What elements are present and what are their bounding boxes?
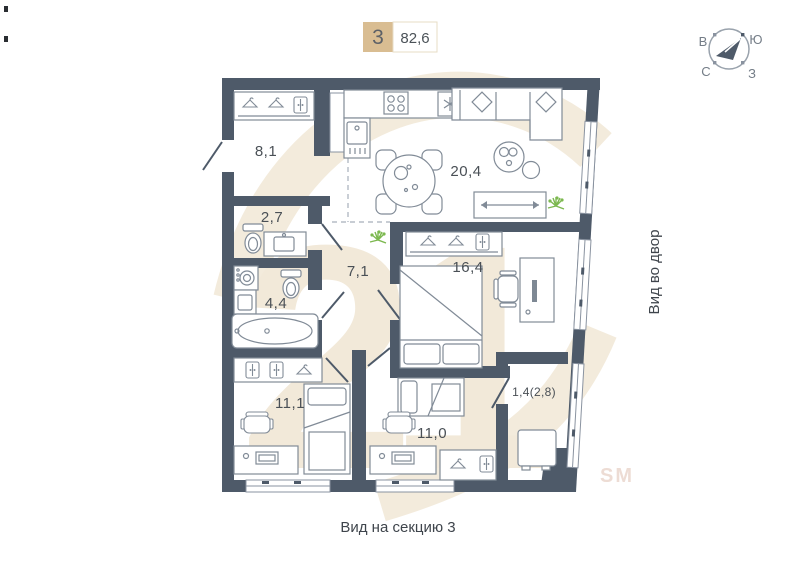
floor-plan-canvas: 21 SM 3 82,6 В Ю С З [0, 0, 800, 566]
wc-vanity-sink [264, 232, 306, 256]
sofa-icon [452, 88, 562, 140]
compass-tick-ne [741, 33, 744, 36]
window-bedroom-second [246, 480, 330, 492]
wall-bath-right-a [308, 268, 322, 290]
desk-chair [498, 276, 518, 302]
compass-tick-se [741, 61, 744, 64]
coffee-table-icon [494, 142, 540, 179]
window-bedroom-third [376, 480, 454, 492]
room-label-corridor: 7,1 [347, 263, 369, 280]
wall-balcony-left-b [496, 404, 508, 480]
double-bed-icon [400, 266, 482, 368]
apartment-badge: 3 82,6 [363, 22, 437, 52]
watermark-small-text: SM [600, 465, 634, 487]
edge-mark-bottom [4, 36, 8, 42]
pillow [443, 344, 479, 364]
duct-shaft [330, 93, 344, 152]
single-bed-icon-third [398, 378, 464, 416]
bedroom-second-wardrobe [234, 358, 322, 382]
wall-bedrooms-divider [352, 350, 366, 480]
floor-plan-page: 21 SM 3 82,6 В Ю С З [0, 0, 800, 566]
dining-table-icon [376, 150, 442, 214]
tv-console-icon [474, 192, 546, 218]
room-label-bedroom-second: 11,1 [275, 395, 305, 412]
compass-tick-nw [713, 33, 716, 36]
caption-section-view: Вид на секцию 3 [340, 519, 455, 536]
room-label-wc: 2,7 [261, 209, 283, 226]
total-area-label: 82,6 [400, 30, 429, 47]
wall-balcony-left-a [496, 352, 508, 376]
room-label-balcony: 1,4(2,8) [512, 385, 556, 399]
pillow [404, 344, 440, 364]
wall-wc-right-b [308, 250, 322, 268]
cabinet-icon [480, 456, 493, 472]
wall-hall-bottom [222, 196, 330, 206]
window-bedroom-main [574, 239, 591, 330]
compass-south: Ю [749, 32, 762, 47]
bathtub-icon [232, 314, 318, 348]
bedroom-third-closet [440, 450, 496, 480]
entrance-door-swing [203, 142, 222, 170]
caption-courtyard-view: Вид во двор [646, 230, 663, 315]
wall-left-upper [222, 78, 234, 140]
monitor-icon [532, 280, 537, 302]
compass-west: З [748, 66, 756, 81]
edge-mark-top [4, 6, 8, 12]
room-label-hallway: 8,1 [255, 143, 277, 160]
cabinet-icon [476, 234, 489, 250]
wall-wc-right-a [308, 206, 322, 224]
rooms-count-label: 3 [372, 26, 384, 49]
cabinet-icon [270, 362, 283, 378]
room-label-bedroom-third: 11,0 [417, 425, 447, 442]
desk-chair [383, 412, 415, 433]
single-bed-icon-second [304, 384, 350, 474]
washing-machine-icon [234, 266, 258, 290]
room-label-bathroom: 4,4 [265, 295, 287, 312]
balcony-bench [518, 430, 556, 470]
bathroom-sink [234, 290, 256, 314]
room-label-bedroom-main: 16,4 [452, 259, 483, 276]
wall-bath-bottom [222, 348, 322, 358]
compass-tick-sw [713, 61, 716, 64]
hallway-wardrobe [234, 92, 314, 120]
desk-chair [241, 412, 273, 433]
cabinet-icon [246, 362, 259, 378]
compass-icon: В Ю С З [699, 29, 763, 81]
compass-east: В [699, 34, 708, 49]
wall-living-bedroom-divider [396, 222, 588, 232]
pillow [308, 388, 346, 405]
bathroom-toilet-icon [281, 270, 301, 298]
room-label-kitchen-living: 20,4 [450, 163, 481, 180]
compass-north: С [701, 64, 710, 79]
pillow [401, 381, 417, 413]
plant-icon [548, 196, 564, 209]
cabinet-icon [294, 97, 307, 113]
bedroom-main-wardrobe [406, 232, 502, 256]
wall-hall-right [314, 90, 330, 156]
wc-toilet-icon [243, 224, 263, 253]
